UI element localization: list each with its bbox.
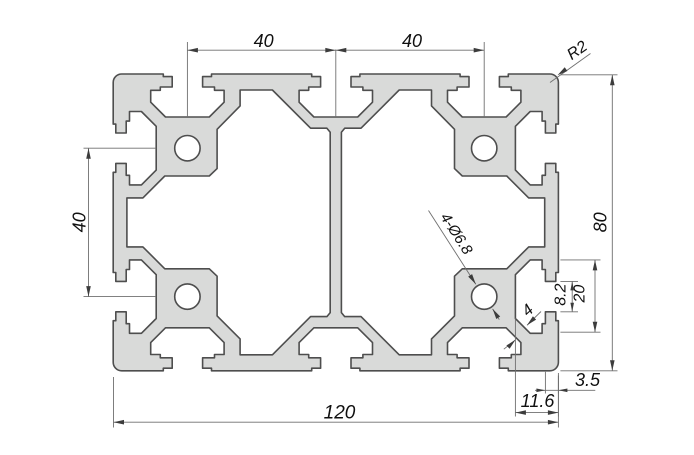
svg-text:20: 20 xyxy=(572,285,589,304)
svg-text:11.6: 11.6 xyxy=(521,391,556,411)
svg-text:120: 120 xyxy=(324,403,356,424)
svg-text:40: 40 xyxy=(254,31,274,51)
svg-text:3.5: 3.5 xyxy=(575,370,601,390)
svg-text:40: 40 xyxy=(70,212,90,232)
svg-text:80: 80 xyxy=(591,212,611,232)
svg-text:40: 40 xyxy=(402,31,422,51)
svg-text:8.2: 8.2 xyxy=(553,283,570,305)
